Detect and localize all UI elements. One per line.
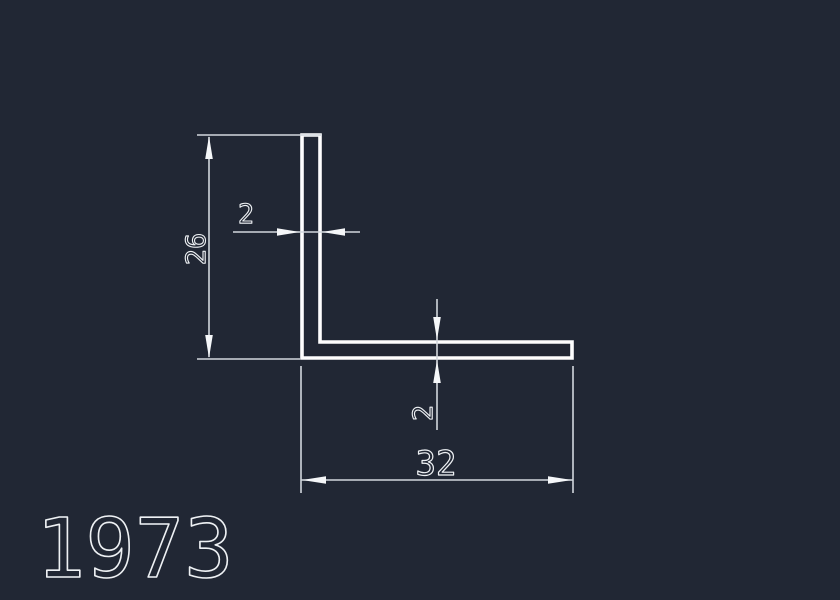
part-number-label: 1973 [36, 502, 233, 597]
height-dimension-label: 26 [181, 233, 212, 266]
cad-canvas: 26 2 2 32 1973 [0, 0, 840, 600]
vthickness-dimension-label: 2 [238, 199, 254, 230]
width-dimension-label: 32 [416, 444, 457, 484]
hthickness-dimension-label: 2 [408, 405, 439, 421]
cad-drawing-viewport: 26 2 2 32 1973 [0, 0, 840, 600]
